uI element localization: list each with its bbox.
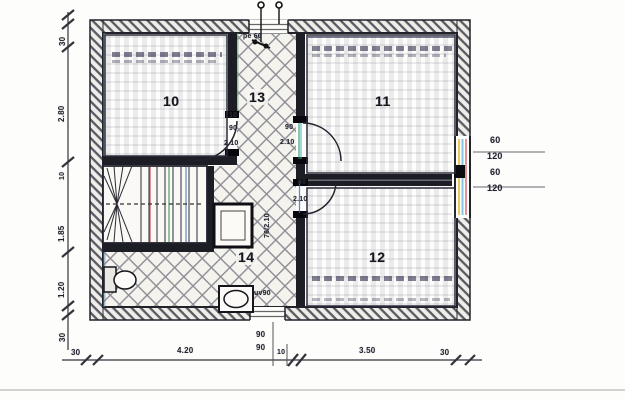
dim-bottom-10: 10	[277, 349, 285, 356]
staircase	[103, 166, 207, 243]
dim-bottom-350: 3.50	[359, 346, 375, 355]
room-label-14: 14	[236, 249, 257, 265]
dim-left-wall-bottom: 30	[58, 333, 67, 342]
room-label-10: 10	[163, 93, 180, 109]
dim-left-small: 10	[59, 172, 66, 180]
plan-linework	[0, 0, 625, 400]
sink-icon	[219, 286, 253, 312]
door-room12-width-label: 90	[298, 179, 306, 186]
door-bath-size-label: 76/2.10	[264, 213, 271, 238]
top-window-label: pe 60	[243, 33, 262, 40]
vent-pipe-icon	[276, 2, 282, 8]
dim-bottom-wall-right: 30	[440, 348, 449, 357]
door-left-height-label: 2.10	[224, 140, 238, 147]
room-label-13: 13	[247, 89, 268, 105]
dim-bottom-90-lower: 90	[256, 343, 265, 352]
door-left-width-label: 90	[229, 125, 237, 132]
room-label-12: 12	[369, 249, 386, 265]
dim-left-room10: 2.80	[57, 106, 66, 122]
dim-right-120a: 120	[487, 151, 503, 161]
door-room12-height-label: 2.10	[293, 196, 307, 203]
bottom-window-label: uv90	[254, 290, 271, 297]
dim-bottom-420: 4.20	[177, 346, 193, 355]
door-room11-width-label: 90	[285, 124, 293, 131]
door-left-small-label: 10	[229, 112, 237, 119]
bottom-window	[250, 307, 285, 321]
scanned-floor-plan-page: 10 13 11 12 14 30 2.80 10 1.85 1.20 30 3…	[0, 0, 625, 400]
dim-right-60b: 60	[490, 167, 500, 177]
dim-bottom-90-upper: 90	[256, 330, 265, 339]
dim-right-120b: 120	[487, 183, 503, 193]
room-label-11: 11	[375, 93, 391, 109]
vent-pipe-icon	[258, 2, 264, 8]
dim-left-stairs: 1.85	[57, 226, 66, 242]
duct-nook	[214, 204, 252, 247]
door-room11-height-label: 2.10	[280, 139, 294, 146]
right-windows	[452, 136, 545, 218]
dim-left-bath: 1.20	[57, 282, 66, 298]
dim-right-60a: 60	[490, 135, 500, 145]
scan-artifact-line	[0, 389, 625, 391]
dim-left-wall-top: 30	[58, 37, 67, 46]
dim-bottom-wall-left: 30	[71, 348, 80, 357]
